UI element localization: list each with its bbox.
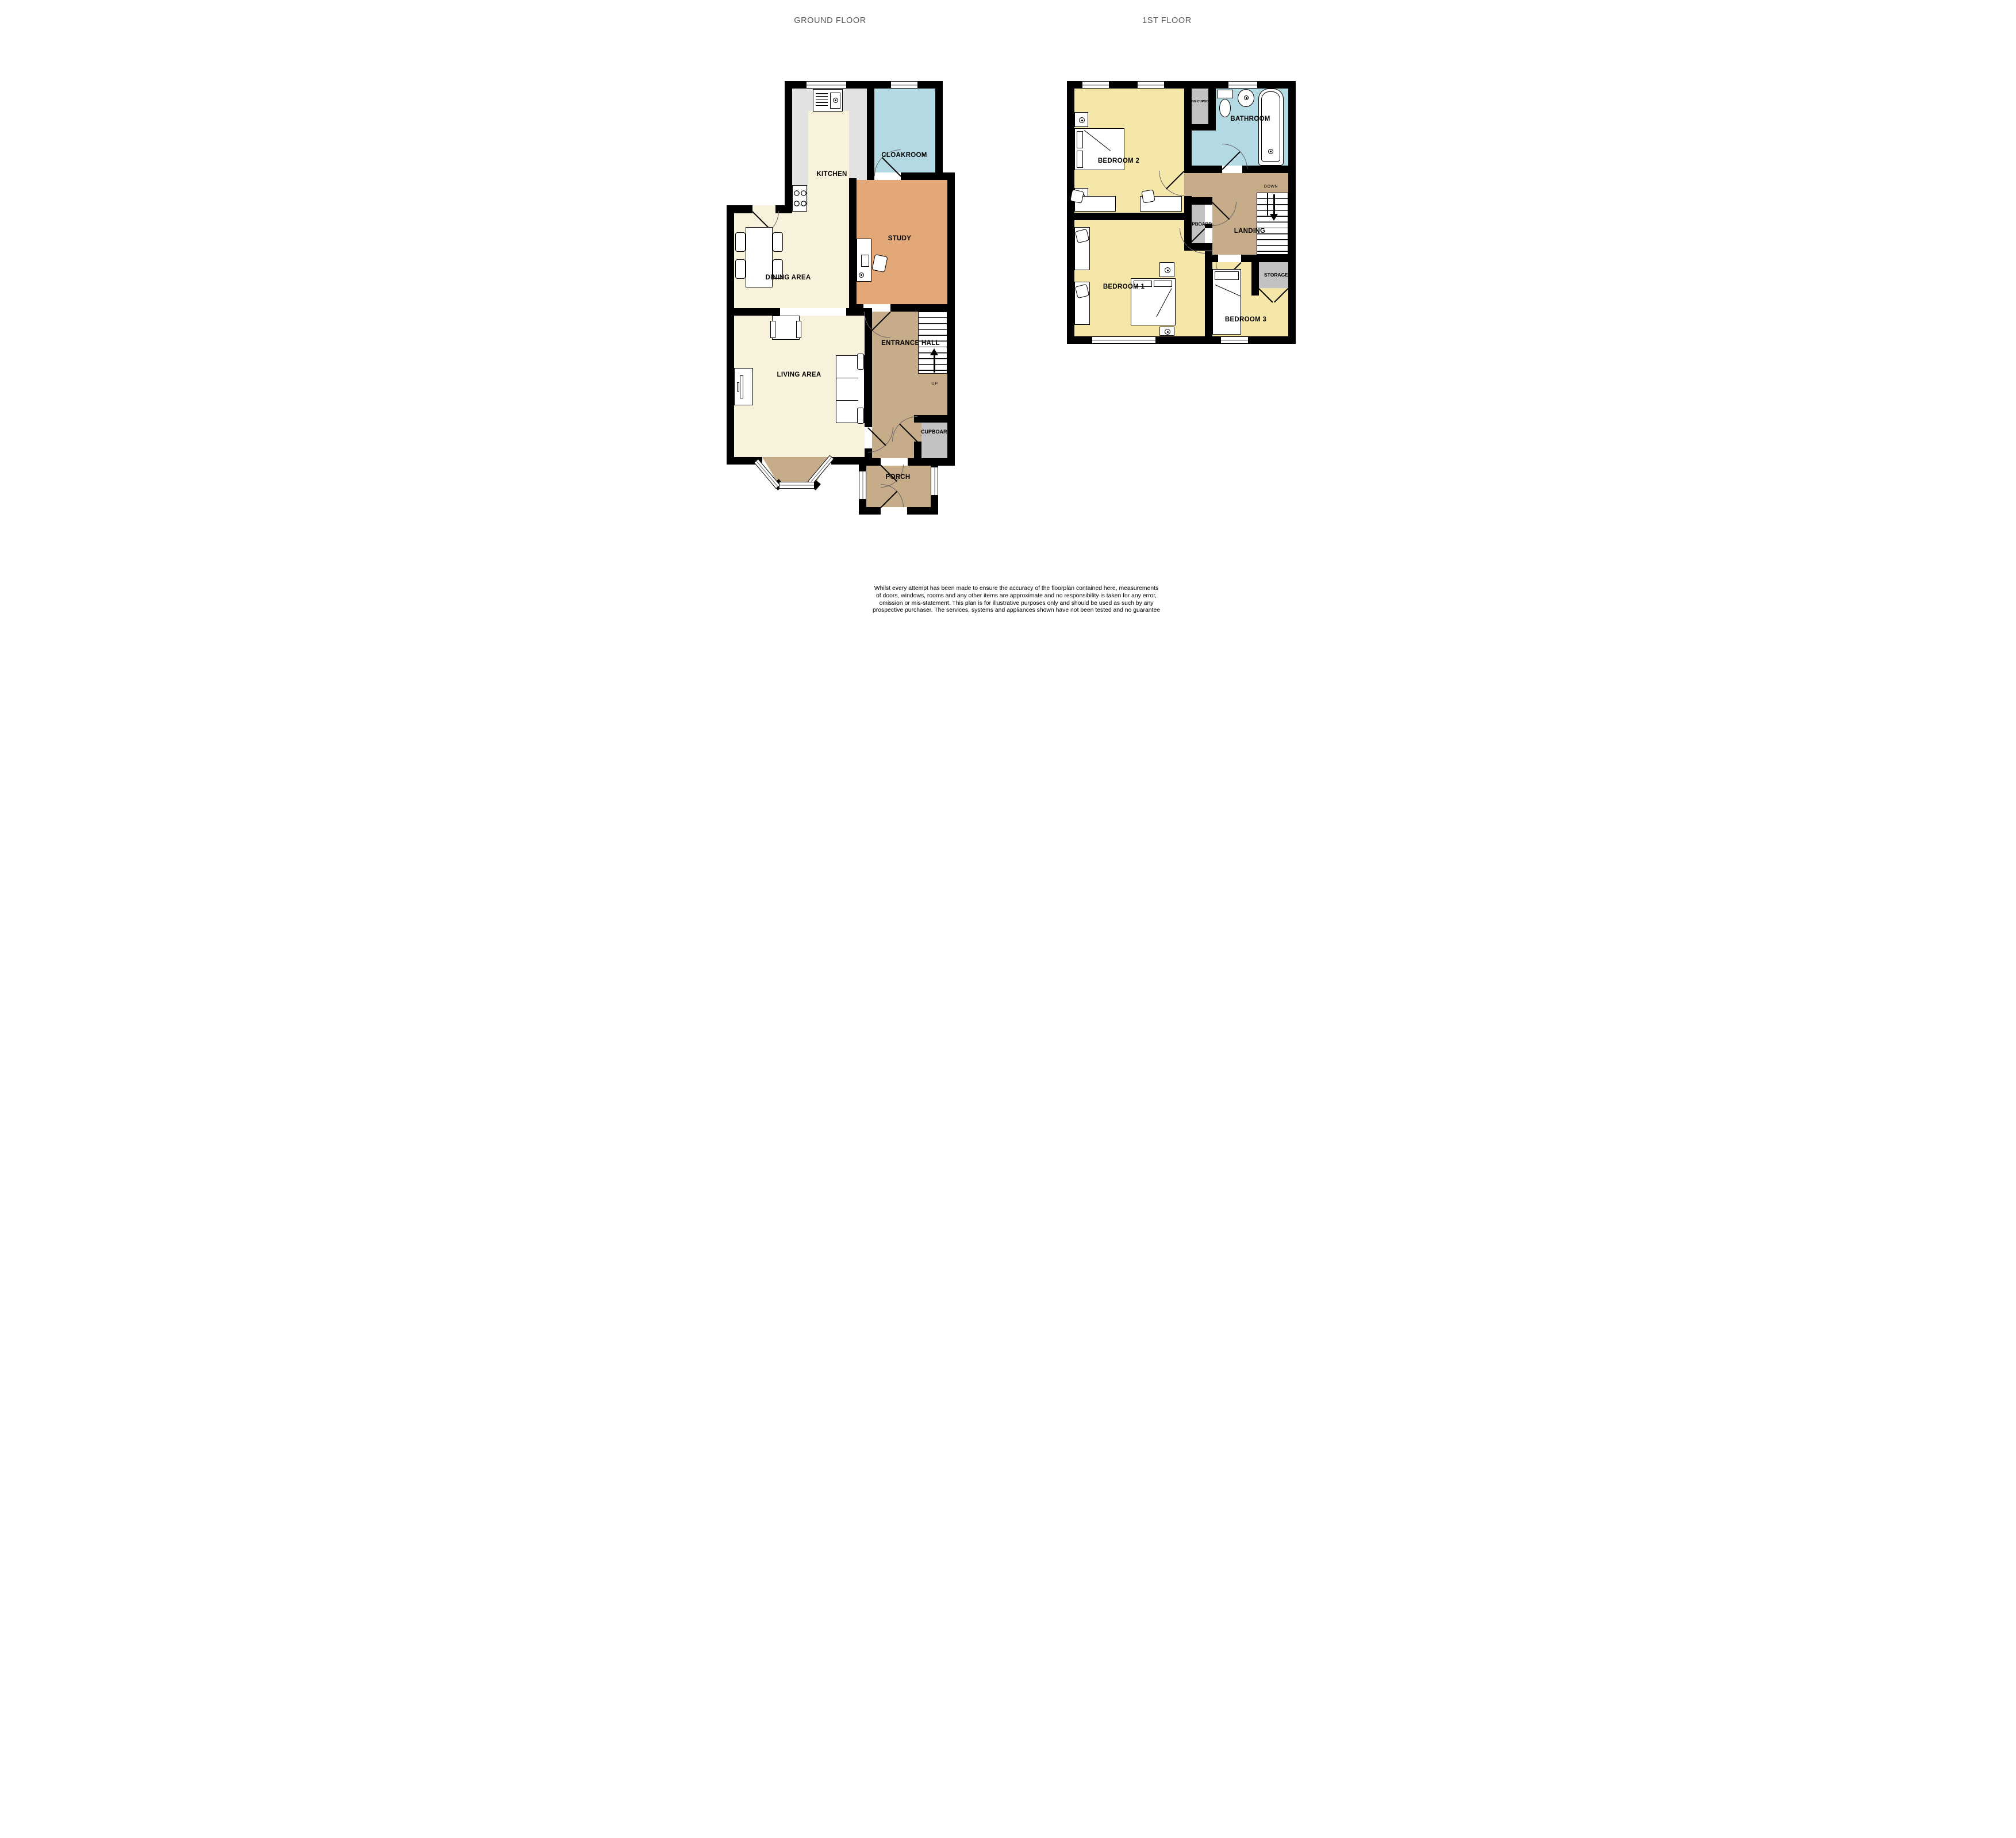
window (890, 81, 918, 89)
wall (785, 81, 792, 213)
wall (859, 507, 881, 515)
sofa-arm (857, 408, 864, 424)
desk-icon (857, 239, 871, 282)
down-arrow-icon (1273, 194, 1275, 214)
kitchen-floor-strip (808, 111, 849, 205)
sink-icon (813, 89, 843, 112)
cupboard-label: CUPBOARD (921, 429, 951, 435)
wall (865, 458, 881, 466)
wall (1208, 81, 1216, 131)
chair-icon (773, 232, 783, 252)
wall (907, 507, 938, 515)
disclaimer-text: Whilst every attempt has been made to en… (835, 585, 1197, 613)
window (1228, 81, 1258, 89)
porch-label: PORCH (885, 474, 910, 481)
up-label: UP (931, 381, 938, 386)
disclaimer-line: Whilst every attempt has been made to en… (835, 585, 1197, 593)
wall (1241, 255, 1296, 262)
room-bedroom-1 (1184, 251, 1205, 336)
up-arrow-icon (930, 348, 938, 355)
wall (849, 304, 863, 312)
living-area-label: LIVING AREA (777, 371, 821, 378)
window (1137, 81, 1165, 89)
wall (947, 172, 955, 312)
wall (727, 308, 780, 316)
sofa-arm (857, 354, 864, 370)
cupboard-first-label: CUPBOARD (1185, 222, 1212, 227)
tv-unit-icon (734, 368, 753, 405)
wall (1242, 166, 1296, 173)
tv-screen (740, 375, 743, 398)
disclaimer-line: of doors, windows, rooms and any other i… (835, 593, 1197, 600)
room-cupboard-ground (921, 423, 947, 458)
sofa-icon (836, 355, 865, 423)
wall (1184, 124, 1216, 131)
disclaimer-line: omission or mis-statement. This plan is … (835, 600, 1197, 608)
study-label: STUDY (888, 235, 911, 242)
chair-icon (735, 259, 746, 279)
pillow (1077, 151, 1083, 168)
wall (849, 178, 857, 316)
first-floor-title: 1ST FLOOR (1142, 16, 1192, 25)
wall (1067, 213, 1192, 220)
window (1220, 336, 1249, 344)
window (806, 81, 847, 89)
wall (1184, 166, 1222, 173)
pillow (1077, 131, 1083, 148)
storage-label: STORAGE (1264, 272, 1288, 278)
bed-fold-line (1215, 285, 1241, 297)
wall (890, 304, 955, 312)
floorplan-canvas: GROUND FLOOR 1ST FLOOR (672, 0, 1344, 613)
lamp-icon (1165, 267, 1170, 273)
stairs-divider (1267, 193, 1268, 216)
room-bathroom (1192, 131, 1216, 166)
bedroom-1-label: BEDROOM 1 (1103, 283, 1145, 290)
armchair-icon (772, 316, 800, 340)
wall (914, 442, 921, 458)
down-label: DOWN (1264, 185, 1278, 189)
office-chair-icon (1070, 189, 1084, 204)
entrance-hall-label: ENTRANCE HALL (881, 340, 940, 347)
armchair-arm (770, 321, 775, 338)
wall (947, 415, 955, 458)
office-chair-icon (1141, 189, 1155, 203)
down-arrow-icon (1270, 214, 1278, 221)
bathtub-tap (1268, 149, 1273, 154)
desk-monitor (861, 255, 869, 267)
ground-floor-title: GROUND FLOOR (794, 16, 866, 25)
toilet-icon (1217, 90, 1233, 98)
bedroom-3-label: BEDROOM 3 (1225, 316, 1266, 323)
armchair-arm (796, 321, 801, 338)
tv-bracket (737, 382, 739, 392)
lamp-icon (1165, 329, 1170, 335)
wall (1251, 262, 1259, 296)
desk-lamp (859, 273, 864, 278)
sofa-cushion-line (836, 400, 858, 401)
wall (727, 205, 734, 465)
pillow (1154, 281, 1172, 287)
hob-icon (792, 185, 807, 212)
sofa-cushion-line (836, 378, 858, 378)
toilet-icon (1219, 99, 1231, 117)
wall (867, 172, 874, 180)
lamp-icon (1079, 117, 1085, 123)
wall (1288, 81, 1296, 344)
airing-cupboard-label: AIRING CUPBOARD (1185, 100, 1216, 103)
single-bed-icon (1212, 269, 1241, 335)
basin-drain (1244, 95, 1249, 100)
window (859, 471, 866, 500)
chair-icon (735, 232, 746, 252)
bed-fold-line (1084, 130, 1111, 151)
wall (1205, 255, 1218, 262)
window (931, 467, 938, 496)
wall (901, 172, 955, 180)
bathtub-icon (1258, 89, 1284, 166)
nightstand-icon (1159, 327, 1174, 336)
basin-icon (1238, 89, 1254, 107)
window (1082, 81, 1109, 89)
wall (947, 312, 955, 415)
nightstand-icon (1074, 112, 1088, 127)
bedroom-2-label: BEDROOM 2 (1098, 158, 1139, 164)
disclaimer-line: prospective purchaser. The services, sys… (835, 607, 1197, 613)
room-airing-cupboard (1192, 89, 1208, 124)
pillow (1215, 271, 1239, 280)
window (1092, 336, 1156, 344)
dining-area-label: DINING AREA (766, 274, 811, 281)
bed-fold-line (1156, 288, 1172, 317)
wall (1205, 251, 1212, 336)
up-arrow-icon (934, 355, 935, 373)
bathroom-label: BATHROOM (1230, 116, 1270, 122)
sink-drain-dot (833, 98, 838, 103)
bay-window (779, 482, 815, 489)
landing-label: LANDING (1234, 228, 1266, 235)
wall (935, 81, 943, 180)
wall (1205, 197, 1212, 202)
sink-drainer (816, 93, 828, 108)
wall (867, 81, 874, 180)
kitchen-label: KITCHEN (816, 171, 847, 178)
nightstand-icon (1159, 262, 1174, 277)
stairs-icon (1257, 193, 1288, 255)
cloakroom-label: CLOAKROOM (881, 152, 927, 159)
